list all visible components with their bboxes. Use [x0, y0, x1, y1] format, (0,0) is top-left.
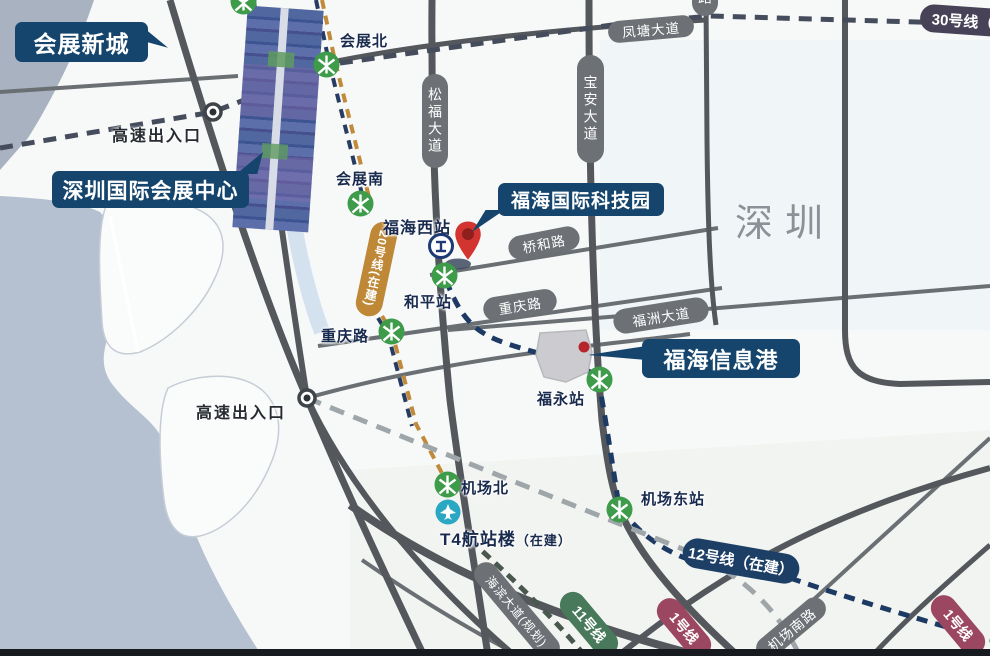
- airplane-icon: [435, 499, 462, 526]
- map-base-layer: [0, 0, 990, 656]
- metro-icon-huizhan-south: [347, 190, 374, 217]
- river-strip: [294, 225, 322, 332]
- station-label-jichang-east: 机场东站: [641, 488, 705, 509]
- metro-icon-huizhan-north: [313, 51, 340, 78]
- road-text-chongqing: 重庆路: [321, 325, 369, 346]
- info-port-building: [536, 330, 592, 382]
- station-label-huizhan-north: 会展北: [340, 30, 388, 51]
- transit-map: 凤塘大道 松福大道 宝安大道 桥和路 重庆路 福洲大道 机场南路 海滨大道(规划…: [0, 0, 990, 656]
- callout-tech-park: 福海国际科技园: [498, 183, 664, 216]
- station-label-jichang-north: 机场北: [461, 477, 509, 498]
- building-green-block: [268, 51, 295, 68]
- metro-icon-jichang-north: [434, 471, 461, 498]
- callout-convention-center: 深圳国际会展中心: [52, 171, 249, 208]
- land-lobe-1: [100, 200, 224, 354]
- metro-icon-jichang-east: [606, 496, 633, 523]
- location-pin-icon: [451, 220, 478, 247]
- station-label-huizhan-south: 会展南: [336, 168, 384, 189]
- callout-new-town: 会展新城: [15, 22, 148, 62]
- bottom-border-bar: [0, 649, 990, 656]
- metro-icon-partial-top: [230, 0, 257, 15]
- expressway-exit-label-north: 高速出入口: [112, 122, 202, 146]
- expressway-exit-label-south: 高速出入口: [196, 399, 286, 423]
- metro-icon-fuyong: [586, 366, 613, 393]
- city-label-shenzhen: 深圳: [735, 192, 835, 247]
- road-pill-songfu: 松福大道: [422, 74, 448, 168]
- building-green-block: [261, 143, 288, 160]
- station-label-t4: T4航站楼（在建）: [440, 525, 572, 550]
- callout-info-port: 福海信息港: [642, 339, 800, 378]
- station-label-fuyong: 福永站: [537, 388, 585, 409]
- t4-status: （在建）: [516, 533, 572, 548]
- info-port-dot: [579, 342, 590, 353]
- metro-icon-heping: [431, 262, 458, 289]
- road-pill-baoan: 宝安大道: [577, 55, 604, 163]
- metro-icon-chongqing: [378, 318, 405, 345]
- station-label-heping: 和平站: [404, 291, 452, 312]
- t4-name: T4航站楼: [440, 530, 516, 549]
